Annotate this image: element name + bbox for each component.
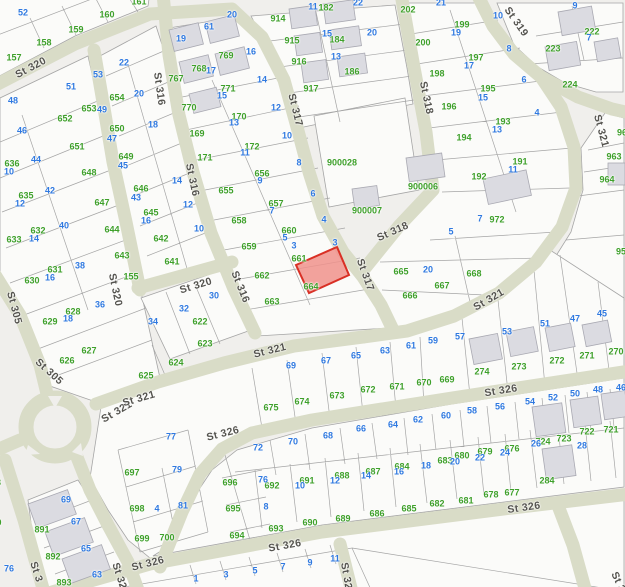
building xyxy=(545,323,575,352)
building xyxy=(545,41,581,70)
road-roundabout-west-exit xyxy=(0,440,20,452)
building-900006 xyxy=(406,153,445,182)
building xyxy=(506,327,538,357)
building xyxy=(542,445,576,480)
building xyxy=(301,60,329,83)
building xyxy=(582,320,612,347)
building xyxy=(294,32,323,55)
building xyxy=(337,53,368,77)
building-900007 xyxy=(352,186,380,209)
building xyxy=(570,396,602,428)
map-canvas[interactable]: St 320St 316St 316St 316St 317St 317St 3… xyxy=(0,0,625,587)
building xyxy=(608,163,625,185)
building xyxy=(594,38,621,62)
building xyxy=(329,26,361,50)
building xyxy=(289,5,318,28)
building xyxy=(469,333,502,364)
building xyxy=(323,0,355,24)
building xyxy=(601,391,625,420)
building xyxy=(532,403,566,437)
map-graphics xyxy=(0,0,625,587)
